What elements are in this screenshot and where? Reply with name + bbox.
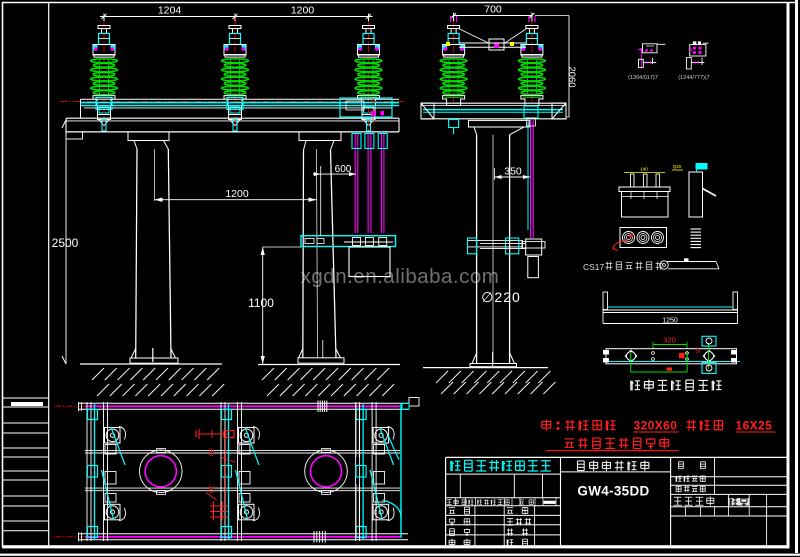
svg-text:2500: 2500 (52, 236, 79, 250)
svg-text:1200: 1200 (291, 5, 315, 17)
svg-text:CS17: CS17 (583, 262, 605, 272)
svg-text:Q20: Q20 (673, 164, 682, 169)
svg-text:350: 350 (504, 166, 522, 178)
svg-text:∅220: ∅220 (481, 289, 521, 305)
svg-text:1250: 1250 (662, 318, 678, 325)
svg-text:xgdn.en.alibaba.com: xgdn.en.alibaba.com (301, 265, 500, 288)
svg-text:2060: 2060 (566, 66, 577, 87)
svg-text:16X25: 16X25 (736, 419, 773, 433)
svg-text:GW4-35DD: GW4-35DD (577, 484, 649, 499)
svg-text:140: 140 (640, 167, 648, 172)
svg-text:1204: 1204 (158, 5, 182, 17)
svg-text:30: 30 (207, 485, 214, 493)
svg-text:1200: 1200 (225, 188, 249, 200)
svg-text:25: 25 (694, 347, 700, 353)
svg-text:700: 700 (484, 4, 502, 16)
svg-text:(1304/017)7: (1304/017)7 (628, 75, 658, 81)
svg-text:(1244/777)(7: (1244/777)(7 (678, 75, 710, 81)
svg-text:320: 320 (663, 336, 676, 345)
svg-text:1100: 1100 (248, 296, 274, 310)
svg-text:600: 600 (335, 164, 352, 175)
svg-text:320X60: 320X60 (634, 419, 678, 433)
svg-text:30: 30 (207, 448, 214, 456)
